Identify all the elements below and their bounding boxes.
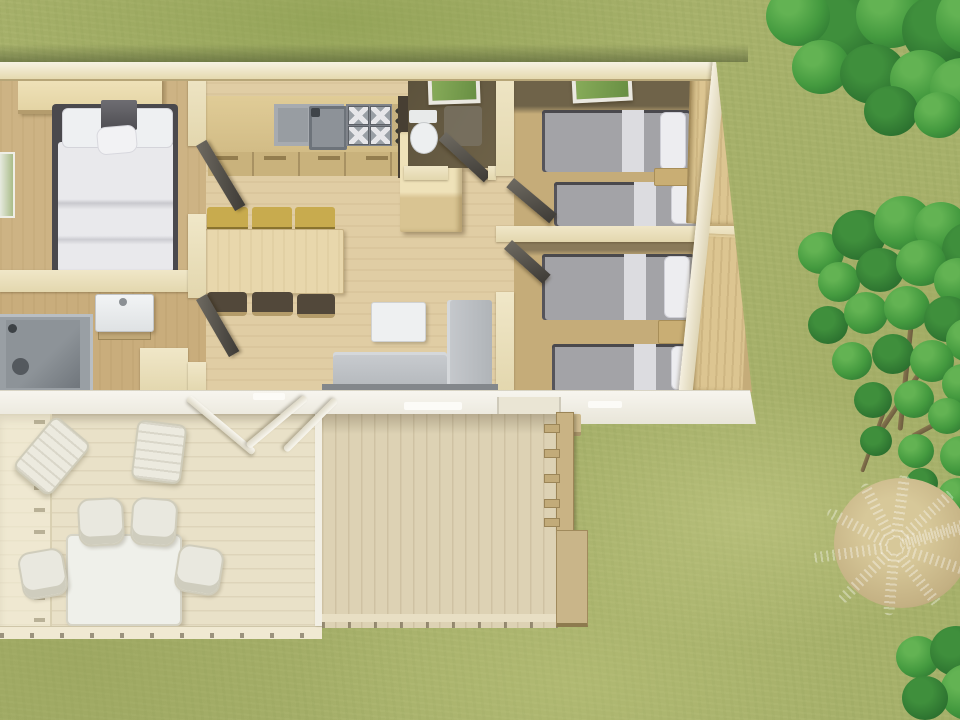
foliage-blob: [914, 92, 960, 138]
shower-head: [8, 324, 17, 333]
foliage-blob: [884, 286, 930, 330]
terrace-edge-fasteners: [0, 633, 322, 638]
partition-wall-left-lower: [188, 362, 206, 392]
wc-bottom-wall-jamb: [488, 166, 496, 180]
railing-rung: [544, 424, 560, 433]
bench-cushion: [295, 207, 335, 231]
foliage-blob: [854, 382, 892, 418]
hob-burner: [370, 106, 391, 125]
bed-pillow: [664, 256, 690, 318]
sofa-chaise: [447, 300, 492, 392]
foliage-blob: [864, 86, 918, 136]
railing-rung: [544, 449, 560, 458]
facade-trim-tab: [253, 393, 285, 400]
cabinet-handle: [318, 156, 340, 160]
toilet-bowl: [410, 122, 438, 154]
top-exterior-wall: [0, 62, 756, 81]
foliage-blob: [860, 426, 892, 456]
bed-small-cushion: [96, 124, 138, 155]
house-top-shadow: [0, 44, 748, 62]
aerial-floor-plan-scene: [0, 0, 960, 720]
lounge-chair: [131, 419, 188, 485]
railing-rung: [544, 499, 560, 508]
kitchen-base-cabinets: [208, 152, 400, 176]
sink-faucet: [311, 108, 320, 117]
cabinet-handle: [366, 156, 388, 160]
covered-terrace: [0, 414, 322, 638]
foliage-blob: [898, 434, 934, 468]
bedroom2-bed-b: [554, 182, 700, 226]
deck-front-edge: [322, 614, 558, 622]
shower-tray: [6, 320, 80, 388]
railing-rung: [544, 518, 560, 527]
master-side-window: [0, 152, 15, 218]
cabinet-handle: [264, 156, 286, 160]
bathroom-corner-unit: [140, 348, 188, 392]
foliage-blob: [832, 342, 872, 380]
bedroom3-bed-a: [542, 254, 694, 320]
garden-table: [66, 534, 182, 626]
wc-bottom-wall: [404, 166, 448, 180]
bench-cushion: [207, 207, 248, 231]
deck-access-step: [556, 530, 588, 627]
foliage-blob: [940, 436, 960, 476]
cabinet-handle: [216, 156, 238, 160]
bed-sheet-fold: [634, 182, 656, 226]
bench-cushion: [252, 207, 292, 231]
gas-hob: [346, 104, 392, 146]
bedroom2-bed-a: [542, 110, 690, 172]
bed-sheet-fold: [624, 254, 646, 320]
hob-burner: [348, 126, 369, 145]
foliage-blob: [902, 676, 948, 720]
hall-wall-lower: [496, 292, 514, 392]
railing-rung: [544, 474, 560, 483]
dining-chair: [297, 294, 335, 318]
dining-chair: [252, 292, 293, 316]
slatted-deck: [322, 414, 558, 628]
garden-chair: [173, 543, 226, 598]
hob-burner: [348, 106, 369, 125]
bedroom3-bed-b: [552, 344, 700, 392]
sink-drainboard: [278, 108, 308, 142]
foliage-blob: [808, 306, 848, 344]
garden-chair: [77, 497, 125, 547]
deck-edge-fasteners: [322, 622, 558, 628]
mobile-home: [0, 62, 756, 402]
coffee-table: [371, 302, 426, 342]
garden-chair: [16, 546, 70, 601]
facade-trim-tab: [588, 401, 622, 408]
garden-chair: [129, 496, 178, 547]
washbasin-faucet: [119, 298, 127, 306]
foliage-blob: [872, 334, 914, 374]
foliage-blob: [928, 398, 960, 434]
dining-table: [205, 229, 344, 294]
bed-sheet-fold: [622, 110, 644, 172]
facade-trim-tab: [404, 402, 462, 410]
hob-burner: [370, 126, 391, 145]
bed-sheet-fold: [634, 344, 656, 392]
bathroom-divider-wall: [0, 270, 188, 292]
partition-wall-left-mid: [188, 214, 206, 298]
shower-drain: [12, 358, 29, 375]
bed-pillow: [660, 112, 686, 170]
double-bed-duvet: [58, 142, 173, 272]
foliage-blob: [844, 292, 888, 334]
